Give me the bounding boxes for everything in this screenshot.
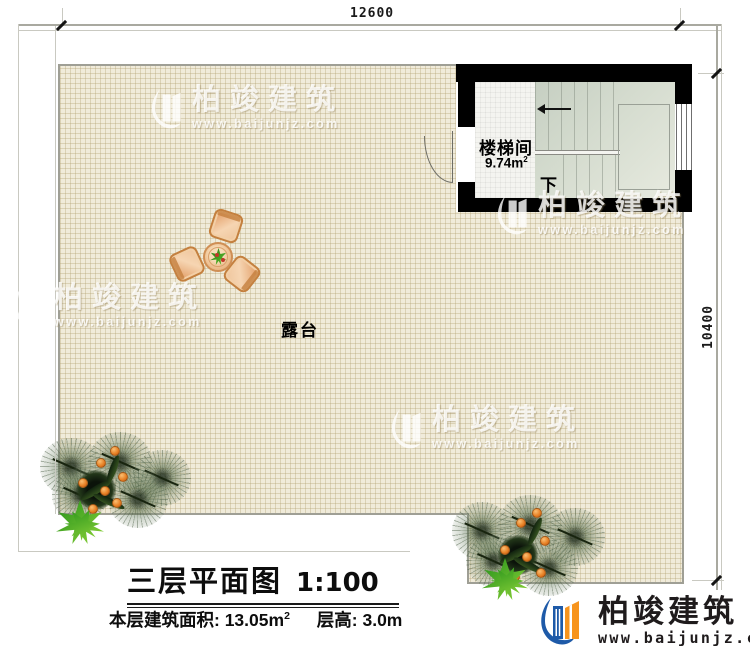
berry: [88, 504, 98, 514]
berry: [112, 498, 122, 508]
floor-stats: 本层建筑面积: 13.05m2 层高: 3.0m: [109, 607, 402, 632]
frame-line-top: [18, 30, 722, 31]
dimension-line-right: [716, 24, 718, 590]
berry: [536, 568, 546, 578]
building-swoosh-logo-icon: [538, 593, 590, 649]
berry: [100, 486, 110, 496]
berry: [500, 545, 510, 555]
floor-area-label: 本层建筑面积:: [109, 610, 220, 630]
berry: [110, 446, 120, 456]
drawing-title: 三层平面图: [127, 558, 282, 600]
floor-height-label: 层高:: [317, 610, 358, 630]
berry: [532, 508, 542, 518]
extension-line-left: [55, 26, 56, 514]
stair-room-area-value: 9.74m: [485, 156, 523, 171]
dimension-top-value: 12600: [350, 6, 394, 21]
company-website: www.baijunjz.com: [598, 631, 750, 646]
stair-window: [676, 104, 692, 170]
berry: [118, 472, 128, 482]
dimension-right-value: 10400: [701, 305, 716, 349]
stair-treads-upper: [535, 82, 619, 150]
table-plant-berry: [215, 253, 219, 257]
wall-bottom: [458, 198, 692, 212]
terrace-label: 露台: [281, 316, 319, 341]
berry: [516, 518, 526, 528]
stair-direction-arrow-icon: [545, 108, 571, 110]
frame-line-right: [721, 24, 722, 590]
berry: [540, 536, 550, 546]
company-name: 柏竣建筑: [598, 596, 750, 627]
extension-stub: [692, 580, 724, 581]
extension-stub: [698, 73, 724, 74]
title-underline: [127, 603, 399, 605]
table-plant-berry: [221, 258, 225, 262]
door-leaf: [452, 131, 453, 182]
wall-left-upper: [458, 64, 475, 127]
stair-room-area-sup: 2: [523, 155, 528, 164]
company-logo: 柏竣建筑 www.baijunjz.com: [538, 593, 750, 649]
wall-right-lower-pier: [675, 170, 692, 198]
stair-well-outline: [618, 104, 670, 190]
stair-room-area: 9.74m2: [485, 155, 528, 171]
floor-area-value: 13.05m: [225, 610, 284, 630]
drawing-title-block: 三层平面图1:100: [127, 558, 399, 608]
floor-height-value: 3.0m: [362, 610, 402, 630]
dimension-line-top: [18, 24, 722, 26]
berry: [78, 478, 88, 488]
berry: [96, 458, 106, 468]
wall-right-upper-pier: [675, 82, 692, 104]
frame-line-left: [18, 24, 19, 551]
frame-line-bottom: [18, 551, 410, 552]
drawing-scale: 1:100: [296, 568, 379, 598]
wall-top: [456, 64, 692, 82]
stair-treads-lower: [563, 155, 619, 198]
stair-direction-label: 下: [540, 171, 557, 196]
floor-plan-page: 柏竣建筑 www.baijunjz.com 柏竣建筑 www.baijunjz.…: [0, 0, 750, 659]
berry: [522, 552, 532, 562]
floor-area-sup: 2: [284, 610, 290, 622]
stair-room: 楼梯间 9.74m2 下: [456, 64, 692, 212]
